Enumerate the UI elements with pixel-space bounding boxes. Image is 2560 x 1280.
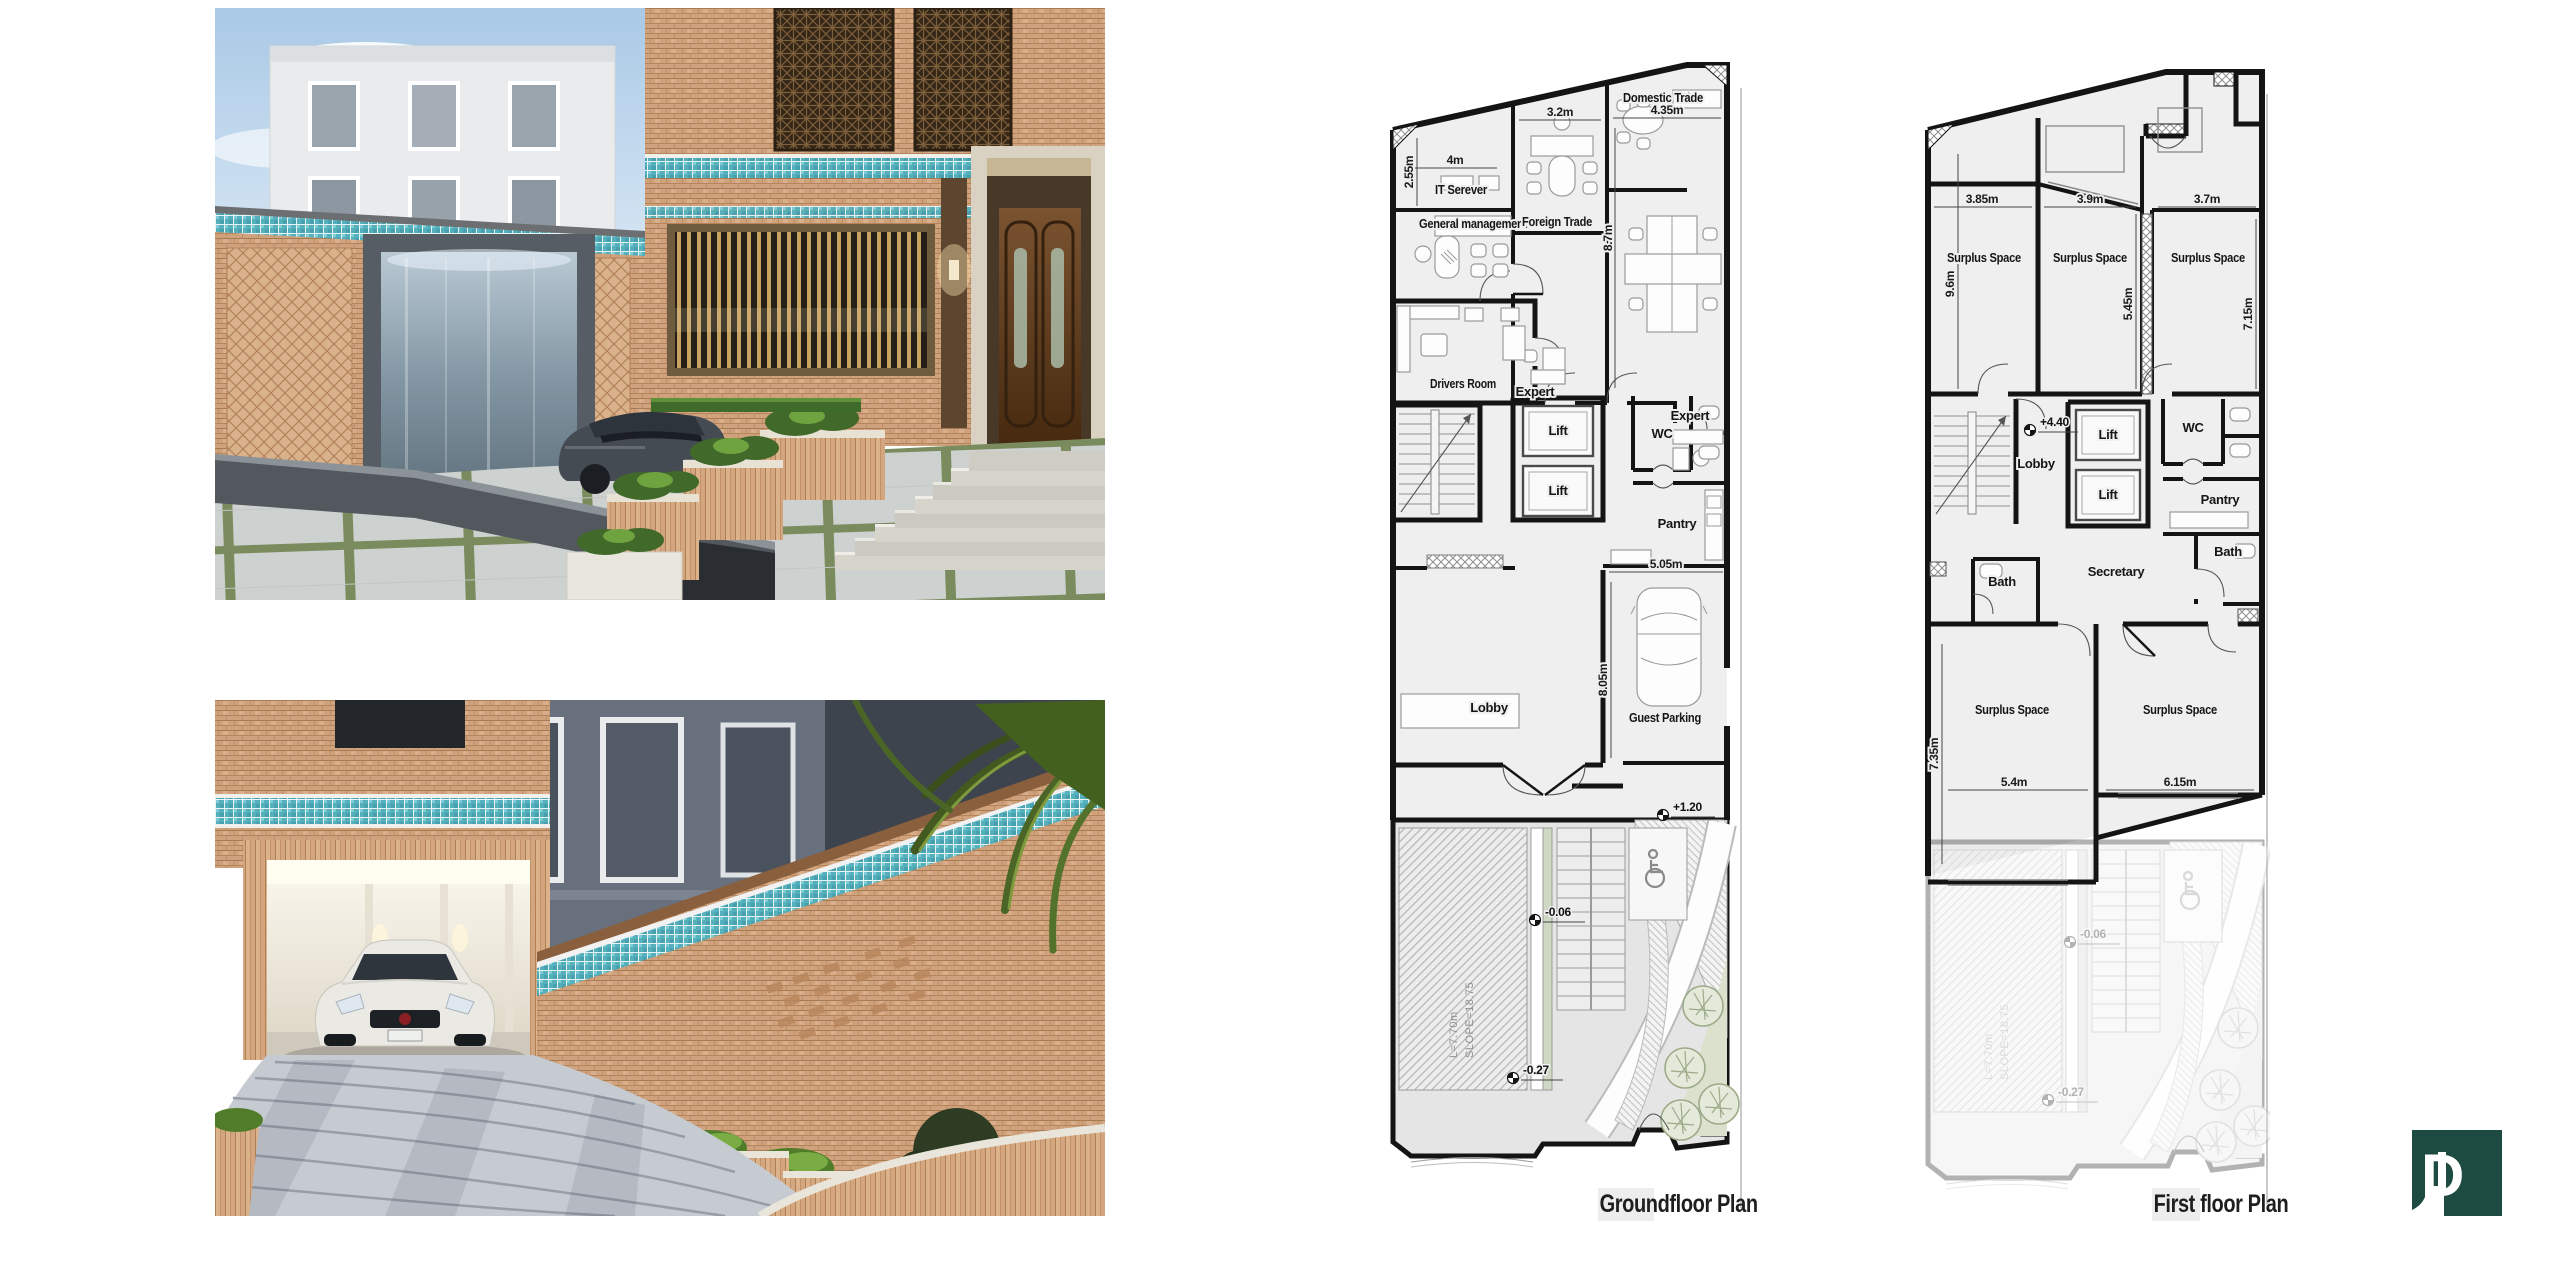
room-label-lift-upper: Lift [1548, 423, 1568, 438]
dim-parking-width: 5.05m [1650, 557, 1683, 571]
front-yard: L=7.70m SLOPE=18.75 -0.06 -0.27 [1393, 820, 1739, 1167]
render-driveway-garage [215, 700, 1105, 1216]
room-label-surplus-top-right: Surplus Space [2171, 250, 2245, 265]
room-label-expert-right: Expert [1671, 408, 1711, 423]
ramp-length-label: L=7.70m [1448, 1011, 1460, 1058]
render-entrance-courtyard [215, 8, 1105, 600]
room-label-it-server: IT Serever [1435, 182, 1487, 197]
room-label-surplus-top-mid: Surplus Space [2053, 250, 2127, 265]
firstfloor-plan: 3.85m 3.9m 3.7m 9.6m 5.45m 7.15m 7.35m 5… [1918, 64, 2270, 1219]
dim-right-depth: 7.15m [2241, 298, 2255, 331]
svg-text:-0.06: -0.06 [1545, 905, 1571, 919]
dim-foreign-width: 3.2m [1547, 105, 1573, 119]
room-label-guest-parking: Guest Parking [1629, 710, 1701, 725]
logo-glyph-stem [2438, 1152, 2446, 1192]
ramp-slope-label: SLOPE=18.75 [1464, 982, 1476, 1058]
dim-low-right-width: 6.15m [2164, 775, 2197, 789]
company-logo: D [2412, 1130, 2502, 1216]
dim-low-left-depth: 7.35m [1927, 738, 1941, 771]
room-label-domestic-trade: Domestic Trade [1623, 90, 1703, 105]
dim-mid-depth: 5.45m [2121, 288, 2135, 321]
parked-car [1631, 588, 1707, 706]
svg-text:+1.20: +1.20 [1673, 800, 1702, 814]
room-label-lift-upper: Lift [2098, 427, 2118, 442]
svg-text:-0.27: -0.27 [1523, 1063, 1549, 1077]
dim-parking-depth: 8.05m [1596, 664, 1610, 697]
dim-top-mid: 3.9m [2077, 192, 2103, 206]
faded-yard-underlay [1928, 842, 2270, 1189]
room-label-bath-right: Bath [2214, 544, 2242, 559]
room-label-general-management: General management [1419, 216, 1528, 231]
dim-it-depth: 2.55m [1402, 156, 1416, 189]
dim-low-left-width: 5.4m [2001, 775, 2027, 789]
dim-it-width: 4m [1447, 153, 1464, 167]
room-label-wc: WC [1651, 426, 1673, 441]
room-label-surplus-low-left: Surplus Space [1975, 702, 2049, 717]
main-building [645, 8, 1105, 451]
room-label-lift-lower: Lift [1548, 483, 1568, 498]
room-label-wc: WC [2182, 420, 2204, 435]
room-label-bath-left: Bath [1988, 574, 2016, 589]
room-label-surplus-top-left: Surplus Space [1947, 250, 2021, 265]
room-label-drivers-room: Drivers Room [1430, 376, 1496, 391]
dim-left-depth: 9.6m [1943, 271, 1957, 297]
groundfloor-plan-title: Groundfloor Plan [1598, 1188, 1762, 1221]
groundfloor-plan: L=7.70m SLOPE=18.75 -0.06 -0.27 [1385, 58, 1757, 1228]
room-label-lift-lower: Lift [2098, 487, 2118, 502]
room-label-lobby: Lobby [1470, 700, 1509, 715]
dim-top-right: 3.7m [2194, 192, 2220, 206]
room-label-surplus-low-right: Surplus Space [2143, 702, 2217, 717]
room-label-foreign-trade: Foreign Trade [1522, 214, 1592, 229]
dim-domestic-width: 4.35m [1651, 103, 1684, 117]
svg-text:+4.40: +4.40 [2040, 415, 2069, 429]
room-label-lobby: Lobby [2017, 456, 2056, 471]
room-label-expert-left: Expert [1516, 384, 1556, 399]
dim-office-depth: 8.7m [1601, 225, 1615, 251]
room-label-pantry: Pantry [1658, 516, 1698, 531]
dim-top-left: 3.85m [1966, 192, 1999, 206]
firstfloor-plan-title: First floor Plan [2152, 1188, 2293, 1221]
room-label-pantry: Pantry [2201, 492, 2241, 507]
accessible-parking [1629, 828, 1687, 920]
yard-stairs [1557, 828, 1625, 1010]
room-label-secretary: Secretary [2088, 564, 2146, 579]
